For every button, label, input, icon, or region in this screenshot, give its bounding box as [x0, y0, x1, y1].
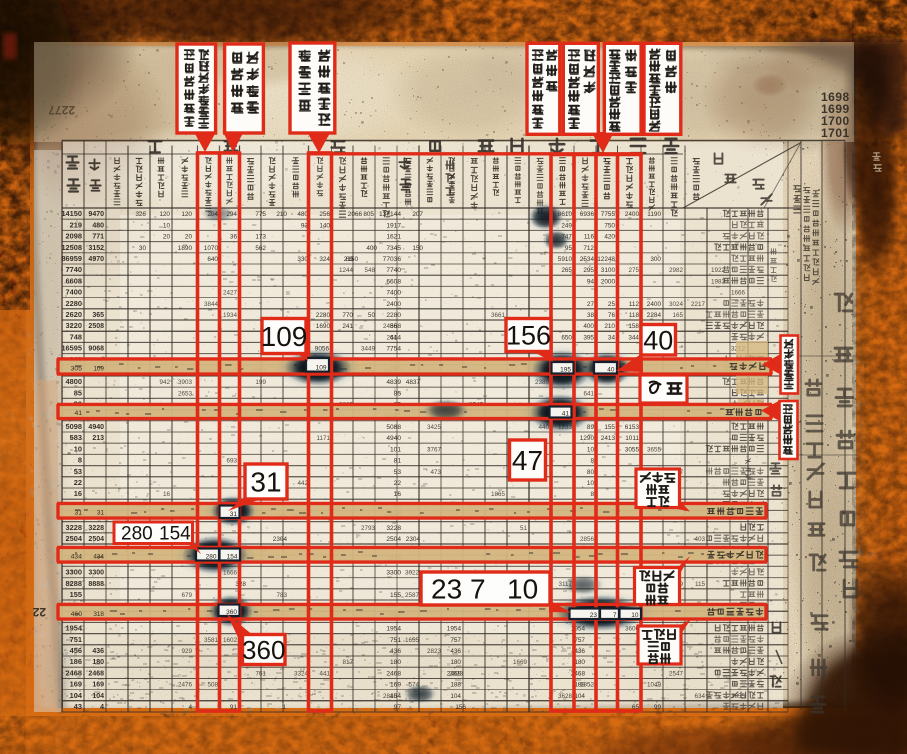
- svg-text:109: 109: [316, 364, 327, 371]
- svg-text:3655: 3655: [647, 446, 662, 453]
- svg-text:2504: 2504: [66, 534, 83, 543]
- svg-text:2000: 2000: [601, 278, 616, 285]
- svg-text:4970: 4970: [88, 256, 104, 263]
- svg-text:53: 53: [74, 467, 82, 476]
- svg-text:7740: 7740: [66, 265, 82, 274]
- svg-text:1190: 1190: [647, 211, 661, 218]
- svg-text:441: 441: [319, 670, 330, 677]
- svg-text:770: 770: [342, 312, 353, 319]
- svg-text:360: 360: [242, 635, 285, 665]
- svg-text:180: 180: [390, 659, 401, 666]
- svg-text:3152: 3152: [88, 245, 104, 252]
- svg-text:207: 207: [412, 211, 423, 218]
- svg-text:10: 10: [587, 446, 595, 453]
- svg-text:4800: 4800: [66, 377, 82, 386]
- svg-text:365: 365: [92, 312, 104, 319]
- svg-text:2587: 2587: [405, 592, 420, 599]
- svg-text:10: 10: [163, 222, 171, 229]
- svg-text:3767: 3767: [427, 446, 442, 453]
- svg-text:112: 112: [629, 301, 640, 308]
- svg-text:761: 761: [255, 670, 266, 677]
- svg-text:473: 473: [430, 469, 441, 476]
- svg-text:10: 10: [74, 444, 82, 453]
- svg-text:2468: 2468: [88, 670, 104, 677]
- svg-text:10: 10: [507, 574, 538, 605]
- svg-text:1602: 1602: [223, 637, 238, 644]
- svg-text:2280: 2280: [66, 299, 82, 308]
- svg-text:2066: 2066: [348, 211, 363, 218]
- svg-text:22: 22: [32, 605, 46, 619]
- svg-text:434: 434: [71, 554, 83, 561]
- svg-text:1049: 1049: [647, 682, 662, 689]
- svg-text:169: 169: [70, 680, 82, 689]
- svg-text:173: 173: [255, 234, 266, 241]
- svg-text:22: 22: [394, 480, 402, 487]
- svg-text:3903: 3903: [178, 379, 193, 386]
- svg-text:5910: 5910: [558, 256, 573, 263]
- svg-text:2400: 2400: [386, 301, 401, 308]
- svg-text:25: 25: [608, 301, 616, 308]
- svg-text:244: 244: [386, 334, 397, 341]
- svg-text:180: 180: [92, 659, 104, 666]
- svg-text:712: 712: [583, 245, 594, 252]
- svg-text:324: 324: [319, 256, 330, 263]
- svg-text:120: 120: [159, 211, 170, 218]
- svg-text:154: 154: [159, 524, 191, 545]
- svg-text:7345: 7345: [386, 245, 401, 252]
- svg-text:1666: 1666: [731, 290, 746, 297]
- svg-text:2823: 2823: [449, 670, 464, 677]
- svg-text:169: 169: [92, 682, 104, 689]
- svg-text:16: 16: [74, 489, 82, 498]
- svg-text:3022: 3022: [405, 570, 420, 577]
- svg-text:85: 85: [74, 388, 82, 397]
- svg-text:31: 31: [97, 510, 105, 517]
- svg-text:38: 38: [587, 312, 595, 319]
- svg-text:94: 94: [587, 278, 595, 285]
- svg-text:14150: 14150: [61, 209, 82, 218]
- svg-text:400: 400: [583, 323, 594, 330]
- svg-text:104: 104: [574, 693, 585, 700]
- svg-text:8: 8: [590, 491, 594, 498]
- svg-text:1690: 1690: [316, 323, 331, 330]
- svg-text:5088: 5088: [386, 424, 401, 431]
- svg-text:115: 115: [695, 581, 706, 588]
- svg-text:751: 751: [390, 637, 401, 644]
- svg-text:199: 199: [255, 379, 266, 386]
- svg-text:1070: 1070: [204, 245, 219, 252]
- svg-text:109: 109: [261, 321, 308, 352]
- svg-text:118: 118: [629, 312, 640, 319]
- svg-text:2400: 2400: [625, 211, 640, 218]
- svg-text:634: 634: [694, 693, 705, 700]
- svg-text:9470: 9470: [88, 211, 104, 218]
- svg-text:104: 104: [92, 693, 104, 700]
- svg-text:3024: 3024: [669, 301, 684, 308]
- svg-text:22: 22: [74, 478, 82, 487]
- svg-text:929: 929: [181, 648, 192, 655]
- svg-text:1011: 1011: [625, 435, 639, 442]
- svg-text:508: 508: [207, 682, 218, 689]
- svg-text:2304: 2304: [273, 536, 288, 543]
- svg-text:7740: 7740: [386, 267, 401, 274]
- svg-text:757: 757: [574, 637, 585, 644]
- svg-text:400: 400: [366, 245, 377, 252]
- svg-text:2476: 2476: [178, 682, 193, 689]
- svg-text:2653: 2653: [178, 390, 193, 397]
- svg-text:120: 120: [181, 211, 192, 218]
- svg-text:1621: 1621: [386, 234, 401, 241]
- svg-text:4837: 4837: [406, 379, 421, 386]
- svg-text:3300: 3300: [386, 570, 401, 577]
- svg-text:679: 679: [181, 592, 192, 599]
- svg-text:3844: 3844: [204, 301, 219, 308]
- svg-text:2982: 2982: [669, 267, 684, 274]
- svg-text:650: 650: [561, 334, 572, 341]
- svg-text:783: 783: [276, 592, 287, 599]
- svg-text:76: 76: [608, 312, 616, 319]
- svg-text:2504: 2504: [88, 536, 104, 543]
- svg-text:4940: 4940: [88, 424, 104, 431]
- svg-text:8888: 8888: [88, 581, 104, 588]
- svg-text:4940: 4940: [386, 435, 401, 442]
- svg-text:104: 104: [450, 693, 461, 700]
- svg-text:7754: 7754: [386, 346, 401, 353]
- svg-text:750: 750: [604, 222, 615, 229]
- svg-text:275: 275: [628, 267, 639, 274]
- svg-text:344: 344: [628, 334, 639, 341]
- svg-text:51: 51: [520, 525, 528, 532]
- svg-text:2620: 2620: [66, 310, 82, 319]
- svg-text:1: 1: [282, 704, 286, 711]
- svg-text:2400: 2400: [647, 301, 662, 308]
- svg-text:8: 8: [78, 456, 82, 465]
- svg-text:1701: 1701: [821, 126, 850, 140]
- svg-text:3661: 3661: [491, 312, 506, 319]
- svg-text:1934: 1934: [223, 312, 238, 319]
- svg-text:27: 27: [587, 301, 595, 308]
- svg-text:2468: 2468: [66, 668, 82, 677]
- svg-text:420: 420: [604, 234, 615, 241]
- svg-text:40: 40: [643, 326, 673, 356]
- svg-text:186: 186: [70, 657, 82, 666]
- svg-text:295: 295: [583, 267, 594, 274]
- svg-text:7400: 7400: [386, 290, 401, 297]
- svg-text:2793: 2793: [361, 525, 376, 532]
- svg-text:210: 210: [276, 211, 287, 218]
- svg-text:1865: 1865: [491, 491, 506, 498]
- svg-text:2845: 2845: [383, 693, 398, 700]
- svg-text:80: 80: [587, 469, 595, 476]
- svg-text:2413: 2413: [601, 435, 616, 442]
- svg-text:2280: 2280: [316, 312, 331, 319]
- svg-text:23: 23: [431, 574, 462, 605]
- svg-text:180: 180: [574, 659, 585, 666]
- svg-text:2856: 2856: [580, 536, 595, 543]
- svg-text:1954: 1954: [447, 626, 462, 633]
- svg-text:36: 36: [230, 234, 238, 241]
- svg-text:53: 53: [394, 469, 402, 476]
- svg-text:5098: 5098: [66, 422, 82, 431]
- svg-text:751: 751: [70, 635, 82, 644]
- svg-text:20: 20: [163, 234, 171, 241]
- svg-text:2284: 2284: [647, 312, 662, 319]
- svg-text:6153: 6153: [625, 424, 640, 431]
- svg-text:41: 41: [562, 410, 570, 417]
- svg-text:2504: 2504: [386, 536, 401, 543]
- svg-text:256: 256: [319, 211, 330, 218]
- svg-text:31: 31: [250, 467, 281, 498]
- svg-text:30: 30: [139, 245, 147, 252]
- svg-text:7755: 7755: [601, 211, 616, 218]
- svg-text:99: 99: [654, 704, 662, 711]
- svg-text:47: 47: [512, 445, 543, 476]
- svg-text:280: 280: [121, 524, 153, 545]
- svg-text:4839: 4839: [386, 379, 401, 386]
- svg-text:7: 7: [470, 574, 486, 605]
- svg-text:195: 195: [560, 366, 571, 373]
- svg-text:12248: 12248: [597, 256, 615, 263]
- svg-text:155: 155: [70, 590, 82, 599]
- svg-text:2508: 2508: [88, 323, 104, 330]
- svg-text:480: 480: [92, 222, 104, 229]
- svg-text:16: 16: [163, 491, 171, 498]
- svg-text:9068: 9068: [88, 346, 104, 353]
- svg-text:1954: 1954: [386, 626, 401, 633]
- svg-text:154: 154: [227, 553, 238, 560]
- svg-text:2427: 2427: [223, 290, 238, 297]
- svg-text:7: 7: [613, 612, 617, 619]
- svg-text:81: 81: [394, 458, 402, 465]
- svg-text:318: 318: [93, 611, 104, 618]
- svg-text:1655: 1655: [405, 637, 420, 644]
- svg-text:7400: 7400: [66, 288, 82, 297]
- svg-text:1917: 1917: [386, 222, 401, 229]
- svg-text:3228: 3228: [386, 525, 401, 532]
- svg-text:6608: 6608: [66, 276, 82, 285]
- svg-text:2217: 2217: [691, 301, 706, 308]
- svg-text:771: 771: [92, 234, 104, 241]
- svg-text:155: 155: [390, 592, 401, 599]
- svg-text:31: 31: [230, 511, 238, 518]
- svg-text:748: 748: [70, 332, 82, 341]
- svg-text:2486: 2486: [383, 323, 398, 330]
- svg-text:775: 775: [255, 211, 266, 218]
- svg-text:1290: 1290: [580, 435, 595, 442]
- svg-text:3581: 3581: [204, 637, 219, 644]
- svg-text:101: 101: [390, 446, 401, 453]
- svg-text:8288: 8288: [66, 579, 82, 588]
- svg-text:3220: 3220: [66, 321, 82, 330]
- svg-text:3228: 3228: [88, 525, 104, 532]
- svg-text:436: 436: [92, 648, 104, 655]
- svg-text:2277: 2277: [48, 103, 75, 117]
- svg-text:805: 805: [363, 211, 374, 218]
- svg-text:16595: 16595: [61, 344, 82, 353]
- svg-text:6936: 6936: [580, 211, 595, 218]
- svg-text:280: 280: [206, 553, 217, 560]
- svg-text:1954: 1954: [66, 624, 83, 633]
- svg-text:10: 10: [587, 480, 595, 487]
- svg-text:241: 241: [342, 323, 353, 330]
- svg-text:1244: 1244: [339, 267, 354, 274]
- svg-text:40: 40: [607, 366, 615, 373]
- svg-text:2098: 2098: [66, 232, 82, 241]
- svg-text:3100: 3100: [601, 267, 616, 274]
- svg-text:395: 395: [583, 334, 594, 341]
- svg-text:10: 10: [631, 612, 639, 619]
- svg-text:3300: 3300: [66, 568, 82, 577]
- svg-text:219: 219: [70, 220, 82, 229]
- svg-text:116: 116: [584, 234, 595, 241]
- svg-text:2468: 2468: [386, 670, 401, 677]
- svg-text:50: 50: [368, 312, 376, 319]
- svg-text:34: 34: [608, 334, 616, 341]
- svg-text:165: 165: [672, 312, 683, 319]
- svg-text:3228: 3228: [66, 523, 82, 532]
- svg-text:41: 41: [74, 410, 82, 417]
- svg-text:86959: 86959: [61, 254, 82, 263]
- svg-text:137144: 137144: [379, 211, 401, 218]
- svg-text:210: 210: [604, 323, 615, 330]
- svg-text:548: 548: [364, 267, 375, 274]
- svg-text:3449: 3449: [361, 346, 376, 353]
- svg-text:8: 8: [590, 458, 594, 465]
- svg-text:1890: 1890: [178, 245, 193, 252]
- svg-text:2150: 2150: [344, 256, 359, 263]
- svg-text:1852: 1852: [580, 682, 595, 689]
- svg-text:757: 757: [450, 637, 461, 644]
- svg-text:213: 213: [92, 435, 104, 442]
- svg-text:156: 156: [506, 321, 551, 351]
- svg-text:23: 23: [590, 612, 598, 619]
- svg-text:155: 155: [604, 424, 615, 431]
- svg-text:140: 140: [319, 222, 330, 229]
- svg-text:3055: 3055: [625, 446, 640, 453]
- svg-text:562: 562: [255, 245, 266, 252]
- svg-text:2547: 2547: [669, 670, 684, 677]
- svg-text:2280: 2280: [386, 312, 401, 319]
- svg-text:104: 104: [70, 691, 83, 700]
- svg-text:1171: 1171: [316, 435, 330, 442]
- svg-text:2304: 2304: [406, 536, 421, 543]
- svg-text:77036: 77036: [383, 256, 402, 263]
- svg-text:43: 43: [74, 702, 82, 711]
- svg-text:20: 20: [185, 234, 193, 241]
- svg-text:3425: 3425: [427, 424, 442, 431]
- svg-text:640: 640: [207, 256, 218, 263]
- svg-text:942: 942: [159, 379, 170, 386]
- svg-text:12508: 12508: [61, 243, 82, 252]
- svg-text:693: 693: [226, 458, 237, 465]
- svg-text:150: 150: [412, 245, 423, 252]
- svg-text:158: 158: [628, 323, 639, 330]
- svg-text:180: 180: [450, 659, 461, 666]
- svg-text:3300: 3300: [88, 570, 104, 577]
- svg-text:1983: 1983: [711, 278, 726, 285]
- svg-text:300: 300: [650, 256, 661, 263]
